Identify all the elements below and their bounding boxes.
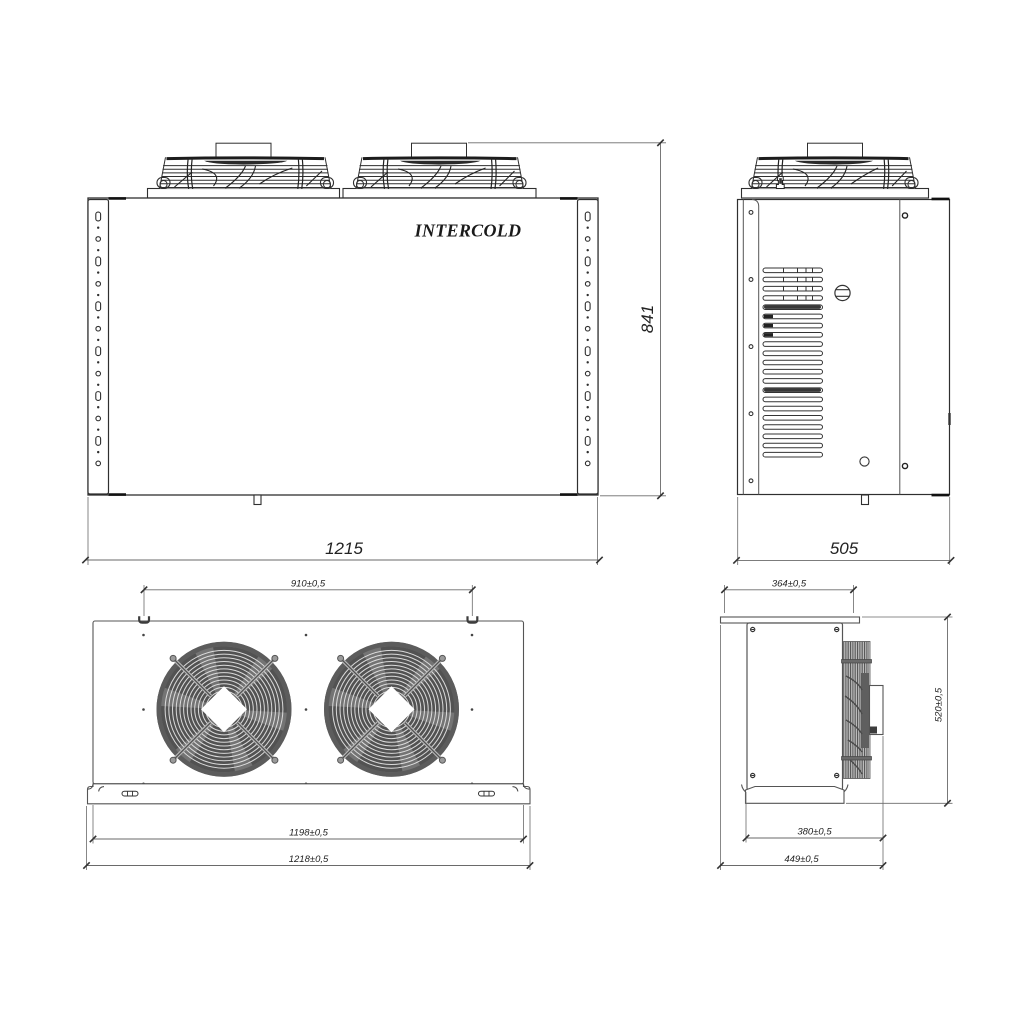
svg-text:380±0,5: 380±0,5 bbox=[797, 827, 832, 838]
svg-text:1198±0,5: 1198±0,5 bbox=[289, 828, 329, 839]
svg-text:910±0,5: 910±0,5 bbox=[291, 579, 326, 590]
svg-text:364±0,5: 364±0,5 bbox=[772, 579, 807, 590]
svg-text:505: 505 bbox=[830, 539, 859, 558]
svg-text:449±0,5: 449±0,5 bbox=[784, 854, 819, 865]
svg-text:1215: 1215 bbox=[325, 539, 363, 558]
svg-text:520±0,5: 520±0,5 bbox=[934, 687, 945, 722]
svg-text:841: 841 bbox=[638, 305, 657, 333]
svg-text:INTERCOLD: INTERCOLD bbox=[414, 221, 522, 241]
svg-text:1218±0,5: 1218±0,5 bbox=[289, 854, 329, 865]
